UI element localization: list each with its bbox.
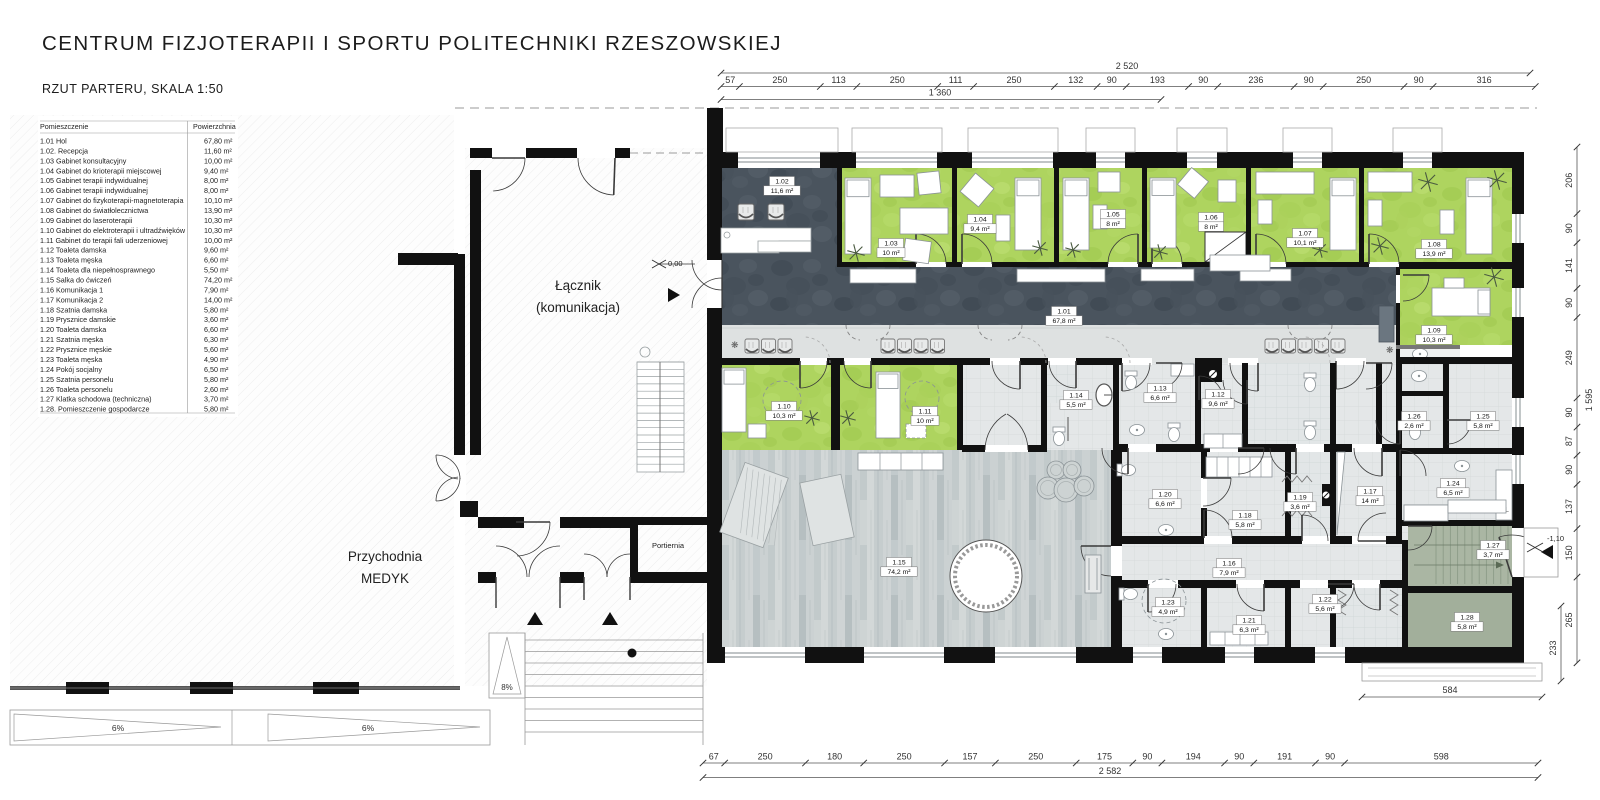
- svg-text:7,90 m²: 7,90 m²: [204, 285, 229, 294]
- svg-text:67,80 m²: 67,80 m²: [204, 137, 233, 146]
- svg-text:1.20: 1.20: [1158, 491, 1171, 498]
- svg-text:CENTRUM FIZJOTERAPII I SPORTU: CENTRUM FIZJOTERAPII I SPORTU POLITECHNI…: [42, 32, 782, 55]
- svg-text:250: 250: [1356, 75, 1371, 85]
- svg-text:8%: 8%: [501, 683, 513, 692]
- svg-text:9,60 m²: 9,60 m²: [204, 246, 229, 255]
- svg-text:1.08 Gabinet do światłolecznic: 1.08 Gabinet do światłolecznictwa: [40, 206, 148, 215]
- svg-text:9,4 m²: 9,4 m²: [970, 226, 990, 233]
- svg-text:8,00 m²: 8,00 m²: [204, 186, 229, 195]
- svg-text:6,6 m²: 6,6 m²: [1150, 395, 1170, 402]
- svg-text:9,6 m²: 9,6 m²: [1208, 401, 1228, 408]
- svg-text:6,3 m²: 6,3 m²: [1239, 627, 1259, 634]
- svg-text:❋: ❋: [1386, 345, 1394, 355]
- svg-text:6%: 6%: [112, 723, 125, 733]
- svg-text:5,80 m²: 5,80 m²: [204, 405, 229, 414]
- svg-text:233: 233: [1548, 640, 1558, 655]
- svg-text:6,5 m²: 6,5 m²: [1443, 490, 1463, 497]
- svg-text:150: 150: [1564, 545, 1574, 560]
- svg-text:10,3 m²: 10,3 m²: [772, 413, 796, 420]
- svg-text:5,8 m²: 5,8 m²: [1235, 522, 1255, 529]
- svg-text:(komunikacja): (komunikacja): [536, 300, 620, 315]
- svg-text:Pomieszczenie: Pomieszczenie: [40, 122, 88, 131]
- svg-text:1.04: 1.04: [973, 216, 986, 223]
- svg-text:1.17 Komunikacja 2: 1.17 Komunikacja 2: [40, 295, 103, 304]
- svg-text:1.20 Toaleta damska: 1.20 Toaleta damska: [40, 325, 106, 334]
- svg-text:1.14 Toaleta dla niepełnospraw: 1.14 Toaleta dla niepełnosprawnego: [40, 266, 155, 275]
- svg-text:1.03: 1.03: [884, 240, 897, 247]
- svg-text:1.11: 1.11: [919, 408, 932, 415]
- svg-text:8 m²: 8 m²: [1106, 221, 1120, 228]
- svg-text:13,9 m²: 13,9 m²: [1422, 251, 1446, 258]
- svg-text:1.03 Gabinet konsultacyjny: 1.03 Gabinet konsultacyjny: [40, 156, 127, 165]
- svg-text:1.24 Pokój socjalny: 1.24 Pokój socjalny: [40, 365, 102, 374]
- svg-text:175: 175: [1097, 752, 1112, 762]
- svg-text:1.28: 1.28: [1460, 614, 1473, 621]
- svg-text:Łącznik: Łącznik: [555, 278, 601, 293]
- svg-text:1.18 Szatnia damska: 1.18 Szatnia damska: [40, 305, 107, 314]
- svg-text:1.19: 1.19: [1293, 494, 1306, 501]
- svg-text:67,8 m²: 67,8 m²: [1052, 318, 1076, 325]
- svg-text:5,80 m²: 5,80 m²: [204, 305, 229, 314]
- svg-text:1.26 Toaleta personelu: 1.26 Toaleta personelu: [40, 385, 113, 394]
- svg-text:10,30 m²: 10,30 m²: [204, 226, 233, 235]
- svg-text:1.12: 1.12: [1211, 391, 1224, 398]
- svg-text:191: 191: [1277, 752, 1292, 762]
- svg-text:90: 90: [1107, 75, 1117, 85]
- svg-text:1.05 Gabinet terapii indywidua: 1.05 Gabinet terapii indywidualnej: [40, 176, 148, 185]
- svg-text:6,60 m²: 6,60 m²: [204, 325, 229, 334]
- svg-text:1.06: 1.06: [1204, 214, 1217, 221]
- svg-text:87: 87: [1564, 436, 1574, 446]
- svg-text:1.16: 1.16: [1222, 560, 1235, 567]
- svg-text:193: 193: [1150, 75, 1165, 85]
- svg-text:316: 316: [1477, 75, 1492, 85]
- svg-text:Portiernia: Portiernia: [652, 541, 685, 550]
- svg-text:111: 111: [949, 75, 963, 85]
- svg-text:194: 194: [1186, 752, 1201, 762]
- svg-text:-1,10: -1,10: [1547, 534, 1564, 543]
- svg-text:90: 90: [1564, 407, 1574, 417]
- svg-text:90: 90: [1564, 465, 1574, 475]
- svg-text:5,8 m²: 5,8 m²: [1473, 423, 1493, 430]
- svg-text:1.22 Prysznice męskie: 1.22 Prysznice męskie: [40, 345, 112, 354]
- svg-text:1.09: 1.09: [1427, 327, 1440, 334]
- svg-text:1.10: 1.10: [777, 403, 790, 410]
- svg-text:90: 90: [1142, 752, 1152, 762]
- svg-text:1.21 Szatnia męska: 1.21 Szatnia męska: [40, 335, 103, 344]
- svg-text:8,00 m²: 8,00 m²: [204, 176, 229, 185]
- svg-text:1.07 Gabinet do fizykoterapii-: 1.07 Gabinet do fizykoterapii-magnetoter…: [40, 196, 183, 205]
- svg-text:1.28. Pomieszczenie gospodarcz: 1.28. Pomieszczenie gospodarcze: [40, 405, 149, 414]
- svg-text:113: 113: [831, 75, 845, 85]
- svg-text:1.23 Toaleta męska: 1.23 Toaleta męska: [40, 355, 102, 364]
- svg-text:7,9 m²: 7,9 m²: [1219, 570, 1239, 577]
- svg-text:1.15 Salka do ćwiczeń: 1.15 Salka do ćwiczeń: [40, 276, 112, 285]
- svg-text:10,00 m²: 10,00 m²: [204, 156, 233, 165]
- svg-text:10,10 m²: 10,10 m²: [204, 196, 233, 205]
- svg-text:Powierzchnia: Powierzchnia: [193, 122, 236, 131]
- svg-text:3,60 m²: 3,60 m²: [204, 315, 229, 324]
- svg-text:1.21: 1.21: [1242, 617, 1255, 624]
- svg-text:5,60 m²: 5,60 m²: [204, 345, 229, 354]
- svg-text:4,90 m²: 4,90 m²: [204, 355, 229, 364]
- svg-text:250: 250: [890, 75, 905, 85]
- svg-text:1.11 Gabinet do terapii fali u: 1.11 Gabinet do terapii fali uderzeniowe…: [40, 236, 168, 245]
- svg-text:1 595: 1 595: [1584, 389, 1594, 412]
- svg-text:6,30 m²: 6,30 m²: [204, 335, 229, 344]
- svg-text:6,6 m²: 6,6 m²: [1155, 501, 1175, 508]
- svg-text:8 m²: 8 m²: [1204, 224, 1218, 231]
- svg-text:180: 180: [827, 752, 842, 762]
- svg-text:11,6 m²: 11,6 m²: [771, 188, 794, 195]
- svg-text:5,5 m²: 5,5 m²: [1066, 402, 1086, 409]
- svg-text:1.26: 1.26: [1407, 413, 1420, 420]
- svg-text:14 m²: 14 m²: [1361, 498, 1379, 505]
- svg-text:10,3 m²: 10,3 m²: [1422, 337, 1446, 344]
- svg-text:10,00 m²: 10,00 m²: [204, 236, 233, 245]
- svg-text:6,50 m²: 6,50 m²: [204, 365, 229, 374]
- svg-text:5,50 m²: 5,50 m²: [204, 266, 229, 275]
- svg-text:250: 250: [758, 752, 773, 762]
- svg-text:10 m²: 10 m²: [916, 418, 934, 425]
- svg-text:250: 250: [1028, 752, 1043, 762]
- svg-text:4,9 m²: 4,9 m²: [1158, 609, 1178, 616]
- svg-text:1.13 Toaleta męska: 1.13 Toaleta męska: [40, 256, 102, 265]
- svg-text:90: 90: [1234, 752, 1244, 762]
- svg-text:1.25 Szatnia personelu: 1.25 Szatnia personelu: [40, 375, 114, 384]
- svg-text:584: 584: [1442, 685, 1457, 695]
- svg-text:❋: ❋: [731, 340, 739, 350]
- svg-text:57: 57: [725, 75, 735, 85]
- svg-text:13,90 m²: 13,90 m²: [204, 206, 233, 215]
- svg-text:1.27 Klatka schodowa (technicz: 1.27 Klatka schodowa (techniczna): [40, 395, 151, 404]
- svg-text:1 360: 1 360: [929, 88, 952, 98]
- svg-text:1.04 Gabinet do krioterapii mi: 1.04 Gabinet do krioterapii miejscowej: [40, 166, 162, 175]
- svg-text:1.05: 1.05: [1106, 211, 1119, 218]
- svg-text:236: 236: [1248, 75, 1263, 85]
- svg-text:206: 206: [1564, 173, 1574, 188]
- svg-text:14,00 m²: 14,00 m²: [204, 295, 233, 304]
- svg-text:90: 90: [1198, 75, 1208, 85]
- svg-text:0,00: 0,00: [668, 259, 683, 268]
- svg-text:157: 157: [962, 752, 977, 762]
- svg-text:250: 250: [772, 75, 787, 85]
- svg-text:1.06 Gabinet terapii indywidua: 1.06 Gabinet terapii indywidualnej: [40, 186, 148, 195]
- svg-text:74,20 m²: 74,20 m²: [204, 276, 233, 285]
- svg-text:2,6 m²: 2,6 m²: [1404, 423, 1424, 430]
- svg-text:1.01: 1.01: [1057, 308, 1070, 315]
- svg-text:137: 137: [1564, 499, 1574, 514]
- svg-text:90: 90: [1304, 75, 1314, 85]
- svg-text:1.01 Hol: 1.01 Hol: [40, 137, 67, 146]
- svg-text:3,6 m²: 3,6 m²: [1290, 504, 1310, 511]
- svg-text:1.25: 1.25: [1476, 413, 1489, 420]
- svg-text:1.17: 1.17: [1363, 488, 1376, 495]
- svg-text:141: 141: [1564, 258, 1574, 273]
- svg-text:RZUT PARTERU, SKALA 1:50: RZUT PARTERU, SKALA 1:50: [42, 82, 224, 96]
- svg-text:6,60 m²: 6,60 m²: [204, 256, 229, 265]
- svg-text:74,2 m²: 74,2 m²: [887, 569, 911, 576]
- svg-text:265: 265: [1564, 612, 1574, 627]
- svg-text:3,70 m²: 3,70 m²: [204, 395, 229, 404]
- svg-text:Przychodnia: Przychodnia: [348, 549, 423, 564]
- svg-text:2,60 m²: 2,60 m²: [204, 385, 229, 394]
- svg-text:1.10 Gabinet do elektroterapii: 1.10 Gabinet do elektroterapii i ultradź…: [40, 226, 186, 235]
- svg-text:1.08: 1.08: [1427, 241, 1440, 248]
- svg-text:90: 90: [1325, 752, 1335, 762]
- svg-text:1.09 Gabinet do laseroterapii: 1.09 Gabinet do laseroterapii: [40, 216, 133, 225]
- svg-text:5,8 m²: 5,8 m²: [1457, 624, 1477, 631]
- svg-text:250: 250: [897, 752, 912, 762]
- svg-text:11,60 m²: 11,60 m²: [204, 146, 232, 155]
- svg-text:10,30 m²: 10,30 m²: [204, 216, 233, 225]
- svg-text:598: 598: [1434, 752, 1449, 762]
- svg-text:10 m²: 10 m²: [882, 250, 900, 257]
- svg-text:1.15: 1.15: [892, 559, 905, 566]
- svg-text:1.19 Prysznice damskie: 1.19 Prysznice damskie: [40, 315, 116, 324]
- svg-text:1.13: 1.13: [1153, 385, 1166, 392]
- svg-text:1.02: 1.02: [775, 178, 788, 185]
- svg-text:1.07: 1.07: [1298, 230, 1311, 237]
- svg-text:249: 249: [1564, 350, 1574, 365]
- svg-text:5,80 m²: 5,80 m²: [204, 375, 229, 384]
- svg-text:132: 132: [1068, 75, 1083, 85]
- svg-text:90: 90: [1564, 298, 1574, 308]
- svg-text:2 582: 2 582: [1099, 766, 1122, 776]
- svg-text:5,6 m²: 5,6 m²: [1315, 606, 1335, 613]
- svg-text:3,7 m²: 3,7 m²: [1483, 552, 1503, 559]
- svg-text:10,1 m²: 10,1 m²: [1293, 240, 1317, 247]
- svg-text:1.22: 1.22: [1318, 596, 1331, 603]
- svg-text:1.02. Recepcja: 1.02. Recepcja: [40, 146, 88, 155]
- svg-text:MEDYK: MEDYK: [361, 571, 409, 586]
- svg-text:90: 90: [1564, 223, 1574, 233]
- svg-text:1.18: 1.18: [1238, 512, 1251, 519]
- svg-text:1.16 Komunikacja 1: 1.16 Komunikacja 1: [40, 285, 103, 294]
- svg-text:1.27: 1.27: [1486, 542, 1499, 549]
- svg-text:1.24: 1.24: [1446, 480, 1459, 487]
- svg-text:1.14: 1.14: [1069, 392, 1082, 399]
- svg-text:90: 90: [1414, 75, 1424, 85]
- svg-text:250: 250: [1006, 75, 1021, 85]
- svg-text:6%: 6%: [362, 723, 375, 733]
- svg-text:2 520: 2 520: [1116, 61, 1139, 71]
- svg-text:1.23: 1.23: [1161, 599, 1174, 606]
- svg-text:67: 67: [709, 752, 719, 762]
- svg-text:1.12 Toaleta damska: 1.12 Toaleta damska: [40, 246, 106, 255]
- svg-text:9,40 m²: 9,40 m²: [204, 166, 229, 175]
